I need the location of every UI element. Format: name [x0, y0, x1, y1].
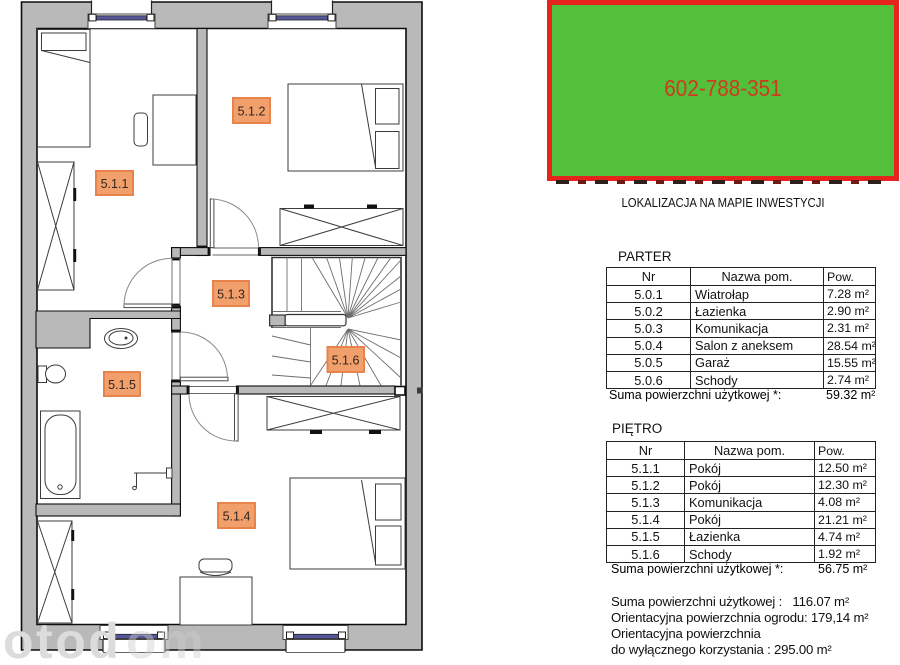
svg-text:5.1.4: 5.1.4 — [223, 510, 251, 524]
svg-text:5.1.6: 5.1.6 — [332, 354, 360, 368]
svg-text:otod: otod — [3, 613, 121, 665]
svg-text:5.1.2: 5.1.2 — [238, 105, 266, 119]
svg-text:5.1.5: 5.1.5 — [108, 378, 136, 392]
svg-text:5.1.1: 5.1.1 — [101, 177, 129, 191]
svg-text:om: om — [126, 613, 206, 665]
svg-text:5.1.3: 5.1.3 — [217, 288, 245, 302]
